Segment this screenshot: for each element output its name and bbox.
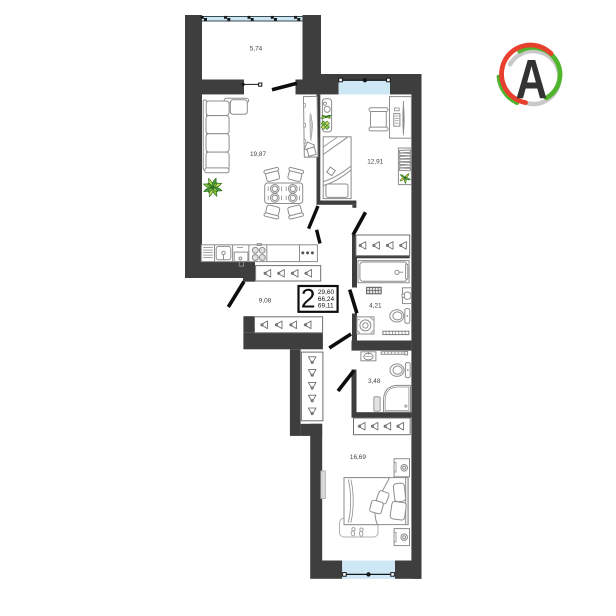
svg-text:A: A — [516, 47, 548, 110]
svg-text:16,69: 16,69 — [350, 454, 366, 461]
svg-text:2: 2 — [301, 283, 316, 313]
svg-text:69,11: 69,11 — [318, 303, 334, 310]
svg-text:19,87: 19,87 — [250, 151, 266, 158]
svg-text:5,74: 5,74 — [250, 46, 263, 53]
svg-text:3,48: 3,48 — [368, 378, 381, 385]
svg-text:4,21: 4,21 — [369, 302, 382, 309]
svg-text:12,91: 12,91 — [367, 159, 383, 166]
svg-text:9,08: 9,08 — [259, 297, 272, 304]
